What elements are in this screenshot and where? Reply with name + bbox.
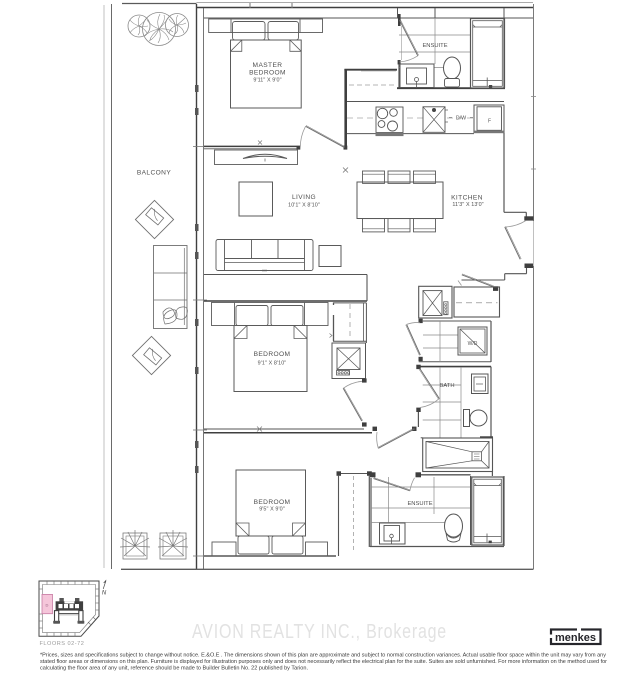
svg-text:D: D [46,603,49,608]
svg-text:9'5" X 9'0": 9'5" X 9'0" [259,507,285,513]
svg-text:stated floor areas or dimensio: stated floor areas or dimensions on this… [40,659,607,665]
svg-text:BEDROOM: BEDROOM [249,70,286,77]
svg-text:*Prices, sizes and specificati: *Prices, sizes and specifications subjec… [40,653,606,659]
svg-text:menkes: menkes [555,632,596,644]
svg-text:KITCHEN: KITCHEN [451,195,483,202]
svg-text:AVION REALTY INC., Brokerage: AVION REALTY INC., Brokerage [192,621,447,643]
svg-text:LIVING: LIVING [292,194,316,201]
svg-text:MASTER: MASTER [253,62,283,69]
svg-text:FLOORS 02-72: FLOORS 02-72 [40,641,85,647]
svg-text:BATH: BATH [439,383,454,389]
svg-text:D/W: D/W [456,116,466,122]
svg-text:W/D: W/D [468,341,478,347]
svg-text:F: F [488,119,491,125]
svg-text:9'11" X 9'0": 9'11" X 9'0" [253,78,281,84]
svg-text:ENSUITE: ENSUITE [422,43,447,49]
svg-text:11'3" X 13'0": 11'3" X 13'0" [452,202,483,208]
svg-text:calculating the floor area of: calculating the floor area of any unit, … [40,666,308,672]
svg-text:BALCONY: BALCONY [137,170,172,177]
svg-text:BEDROOM: BEDROOM [254,499,291,506]
svg-text:N: N [102,591,107,597]
svg-text:10'1" X 8'10": 10'1" X 8'10" [288,203,320,209]
svg-text:BEDROOM: BEDROOM [254,351,291,358]
svg-text:9'1" X 8'10": 9'1" X 8'10" [258,361,287,367]
svg-text:ENSUITE: ENSUITE [407,501,432,507]
